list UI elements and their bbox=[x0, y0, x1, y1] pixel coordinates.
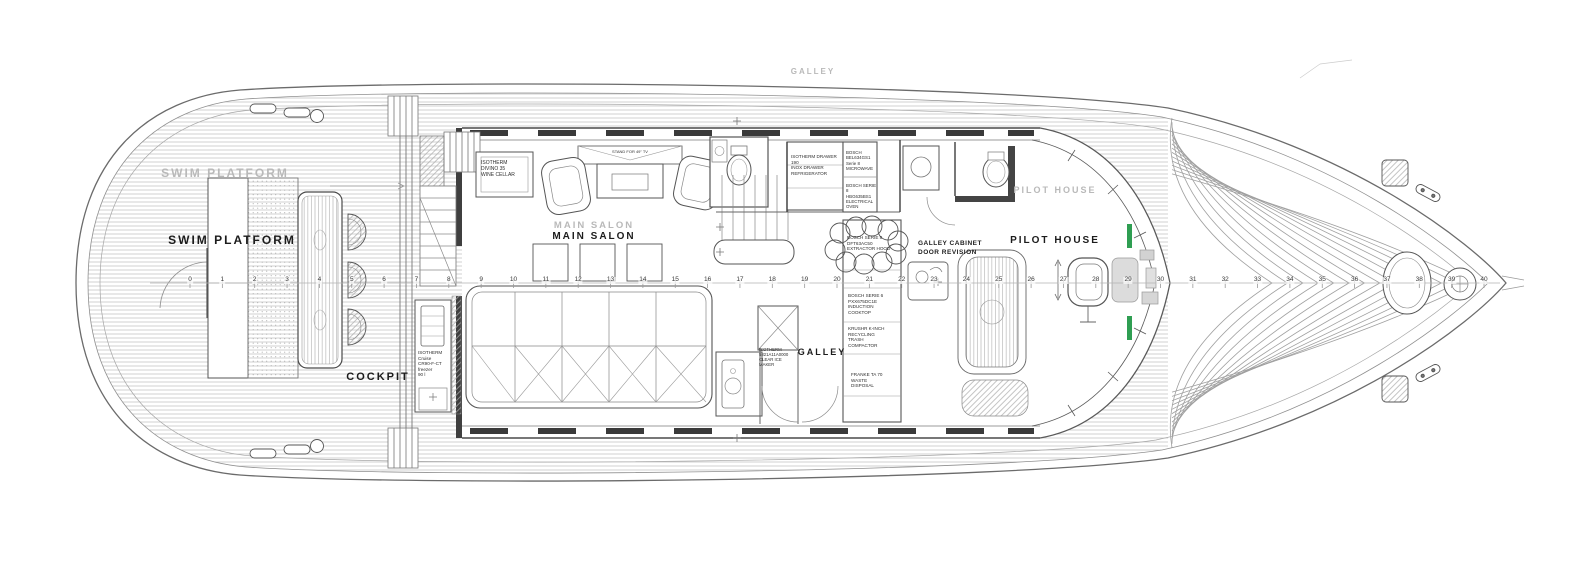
salon-sofa bbox=[466, 286, 712, 408]
coffee-table bbox=[533, 244, 568, 281]
floor-plan-drawing bbox=[0, 0, 1580, 562]
galley-counter bbox=[843, 220, 901, 422]
washbasin bbox=[911, 157, 931, 177]
settee bbox=[962, 380, 1028, 416]
galley-sink bbox=[908, 262, 948, 300]
instrument-panel-green bbox=[1127, 316, 1132, 340]
deck-hatch bbox=[1382, 376, 1408, 402]
bow-cleat bbox=[1414, 183, 1441, 203]
coffee-table bbox=[627, 244, 662, 281]
bar-counter bbox=[714, 240, 794, 264]
yacht-main-deck-floor-plan: SWIM PLATFORM SWIM PLATFORM COCKPIT MAIN… bbox=[0, 0, 1580, 562]
transom-stools bbox=[348, 214, 366, 345]
station-ticks bbox=[190, 278, 1484, 288]
leader-line bbox=[1300, 60, 1352, 78]
instrument-panel-green bbox=[1127, 224, 1132, 248]
dinette-table bbox=[966, 257, 1018, 367]
armchair-port bbox=[540, 156, 593, 217]
ice-maker bbox=[725, 378, 741, 394]
deck-hatch bbox=[1382, 160, 1408, 186]
bow-cleat bbox=[1414, 363, 1441, 383]
drawer-refrigerator bbox=[787, 142, 843, 210]
sink bbox=[715, 147, 724, 156]
tv-lift bbox=[578, 146, 682, 164]
coffee-table bbox=[580, 244, 615, 281]
